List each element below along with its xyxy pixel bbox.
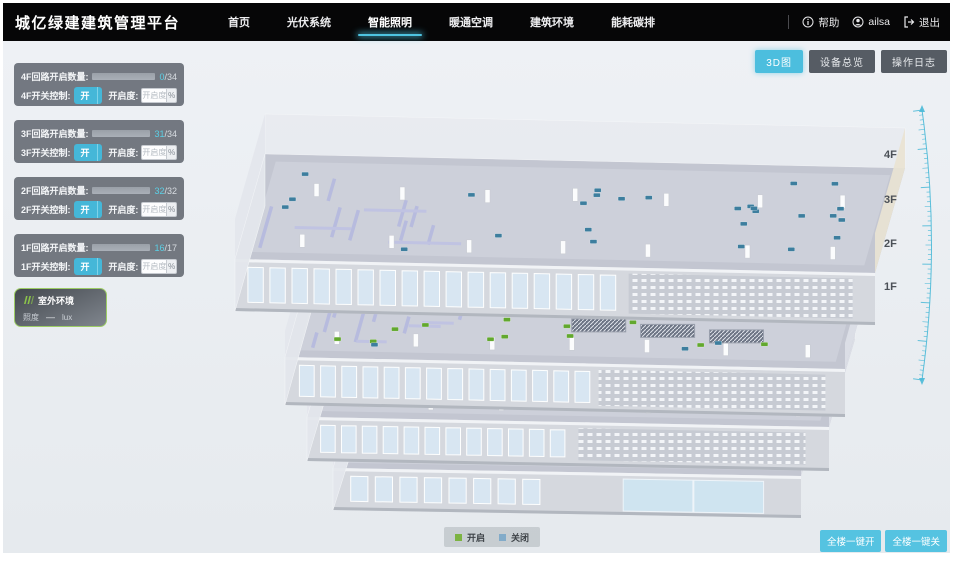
floor-axis-label-3f[interactable]: 3F	[884, 194, 897, 206]
switch-on-button[interactable]: 开	[74, 201, 97, 218]
percent-apply-button[interactable]: %	[167, 88, 177, 103]
dim-level-label: 开启度:	[108, 89, 138, 102]
view-3d-button[interactable]: 3D图	[755, 50, 803, 73]
device-overview-button[interactable]: 设备总览	[809, 50, 875, 73]
user-menu[interactable]: ailsa	[852, 16, 890, 28]
switch-group: 开关	[74, 258, 103, 275]
legend-off-item: 关闭	[499, 531, 529, 544]
dim-level-label: 开启度:	[108, 260, 138, 273]
circuit-progress-bar	[92, 130, 151, 137]
top-bar: 城亿绿建建筑管理平台 首页 光伏系统 智能照明 暖通空调 建筑环境 能耗碳排 帮…	[3, 3, 950, 41]
floor-axis-label-4f[interactable]: 4F	[884, 149, 897, 161]
switch-on-button[interactable]: 开	[74, 87, 97, 104]
floor-axis-label-1f[interactable]: 1F	[884, 281, 897, 293]
floor-zoom-slider[interactable]	[905, 104, 949, 388]
operation-log-button[interactable]: 操作日志	[881, 50, 947, 73]
view-toolbar: 3D图 设备总览 操作日志	[755, 50, 947, 73]
divider	[788, 15, 789, 29]
all-off-button[interactable]: 全楼一键关	[885, 530, 947, 552]
dim-level-input[interactable]: 开启度	[141, 202, 167, 217]
all-on-button[interactable]: 全楼一键开	[820, 530, 882, 552]
switch-group: 开关	[74, 87, 103, 104]
dim-level-input[interactable]: 开启度	[141, 88, 167, 103]
building-3d-view[interactable]	[190, 53, 915, 531]
circuit-progress-bar	[92, 187, 151, 194]
percent-apply-button[interactable]: %	[167, 145, 177, 160]
user-avatar-icon	[852, 16, 864, 28]
switch-on-button[interactable]: 开	[74, 144, 97, 161]
circuit-count-value: 0/34	[159, 72, 177, 82]
dim-level-input[interactable]: 开启度	[141, 259, 167, 274]
circuit-progress-bar	[92, 73, 156, 80]
circuit-count-value: 32/32	[154, 186, 177, 196]
switch-group: 开关	[74, 201, 103, 218]
switch-on-button[interactable]: 开	[74, 258, 97, 275]
circuit-progress-bar	[92, 244, 151, 251]
nav-item-hvac[interactable]: 暖通空调	[447, 1, 495, 43]
floor-axis-label-2f[interactable]: 2F	[884, 238, 897, 250]
app-window: 城亿绿建建筑管理平台 首页 光伏系统 智能照明 暖通空调 建筑环境 能耗碳排 帮…	[0, 0, 953, 564]
master-actions: 全楼一键开 全楼一键关	[820, 530, 947, 552]
light-status-legend: 开启 关闭	[444, 527, 540, 547]
illuminance-label: 照度	[23, 312, 39, 323]
logout-icon	[903, 16, 915, 28]
dim-level-label: 开启度:	[108, 146, 138, 159]
illuminance-unit: lux	[62, 313, 72, 322]
circuit-count-label: 3F回路开启数量:	[21, 127, 89, 140]
app-title: 城亿绿建建筑管理平台	[15, 12, 180, 33]
illuminance-value: —	[46, 312, 55, 322]
top-right-actions: 帮助 ailsa 退出	[788, 15, 940, 30]
switch-group: 开关	[74, 144, 103, 161]
switch-control-label: 1F开关控制:	[21, 260, 71, 273]
nav-item-home[interactable]: 首页	[226, 1, 252, 43]
switch-control-label: 4F开关控制:	[21, 89, 71, 102]
outdoor-env-title: 室外环境	[38, 294, 74, 307]
floor-control-panel-4f: 4F回路开启数量: 0/34 4F开关控制: 开关 开启度: 开启度 %	[14, 63, 184, 106]
nav-item-energy-carbon[interactable]: 能耗碳排	[609, 1, 657, 43]
switch-off-button[interactable]: 关	[97, 258, 103, 275]
dim-level-label: 开启度:	[108, 203, 138, 216]
percent-apply-button[interactable]: %	[167, 259, 177, 274]
switch-control-label: 3F开关控制:	[21, 146, 71, 159]
user-name: ailsa	[868, 16, 890, 28]
floor-control-panel-1f: 1F回路开启数量: 16/17 1F开关控制: 开关 开启度: 开启度 %	[14, 234, 184, 277]
legend-off-swatch	[499, 534, 506, 541]
circuit-count-label: 4F回路开启数量:	[21, 70, 89, 83]
help-icon	[802, 16, 814, 28]
switch-off-button[interactable]: 关	[97, 87, 103, 104]
switch-off-button[interactable]: 关	[97, 144, 103, 161]
circuit-count-value: 31/34	[154, 129, 177, 139]
nav-item-smart-lighting[interactable]: 智能照明	[366, 1, 414, 43]
floor-control-panel-2f: 2F回路开启数量: 32/32 2F开关控制: 开关 开启度: 开启度 %	[14, 177, 184, 220]
legend-on-swatch	[455, 534, 462, 541]
switch-off-button[interactable]: 关	[97, 201, 103, 218]
circuit-count-label: 1F回路开启数量:	[21, 241, 89, 254]
circuit-count-value: 16/17	[154, 243, 177, 253]
main-nav: 首页 光伏系统 智能照明 暖通空调 建筑环境 能耗碳排	[226, 1, 657, 43]
nav-item-building-env[interactable]: 建筑环境	[528, 1, 576, 43]
outdoor-env-icon	[23, 296, 34, 306]
logout-button[interactable]: 退出	[903, 15, 940, 30]
dim-level-input[interactable]: 开启度	[141, 145, 167, 160]
floor-control-panel-3f: 3F回路开启数量: 31/34 3F开关控制: 开关 开启度: 开启度 %	[14, 120, 184, 163]
legend-on-item: 开启	[455, 531, 485, 544]
circuit-count-label: 2F回路开启数量:	[21, 184, 89, 197]
switch-control-label: 2F开关控制:	[21, 203, 71, 216]
help-button[interactable]: 帮助	[802, 15, 839, 30]
outdoor-environment-panel: 室外环境 照度 — lux	[14, 288, 107, 327]
nav-item-pv-system[interactable]: 光伏系统	[285, 1, 333, 43]
percent-apply-button[interactable]: %	[167, 202, 177, 217]
